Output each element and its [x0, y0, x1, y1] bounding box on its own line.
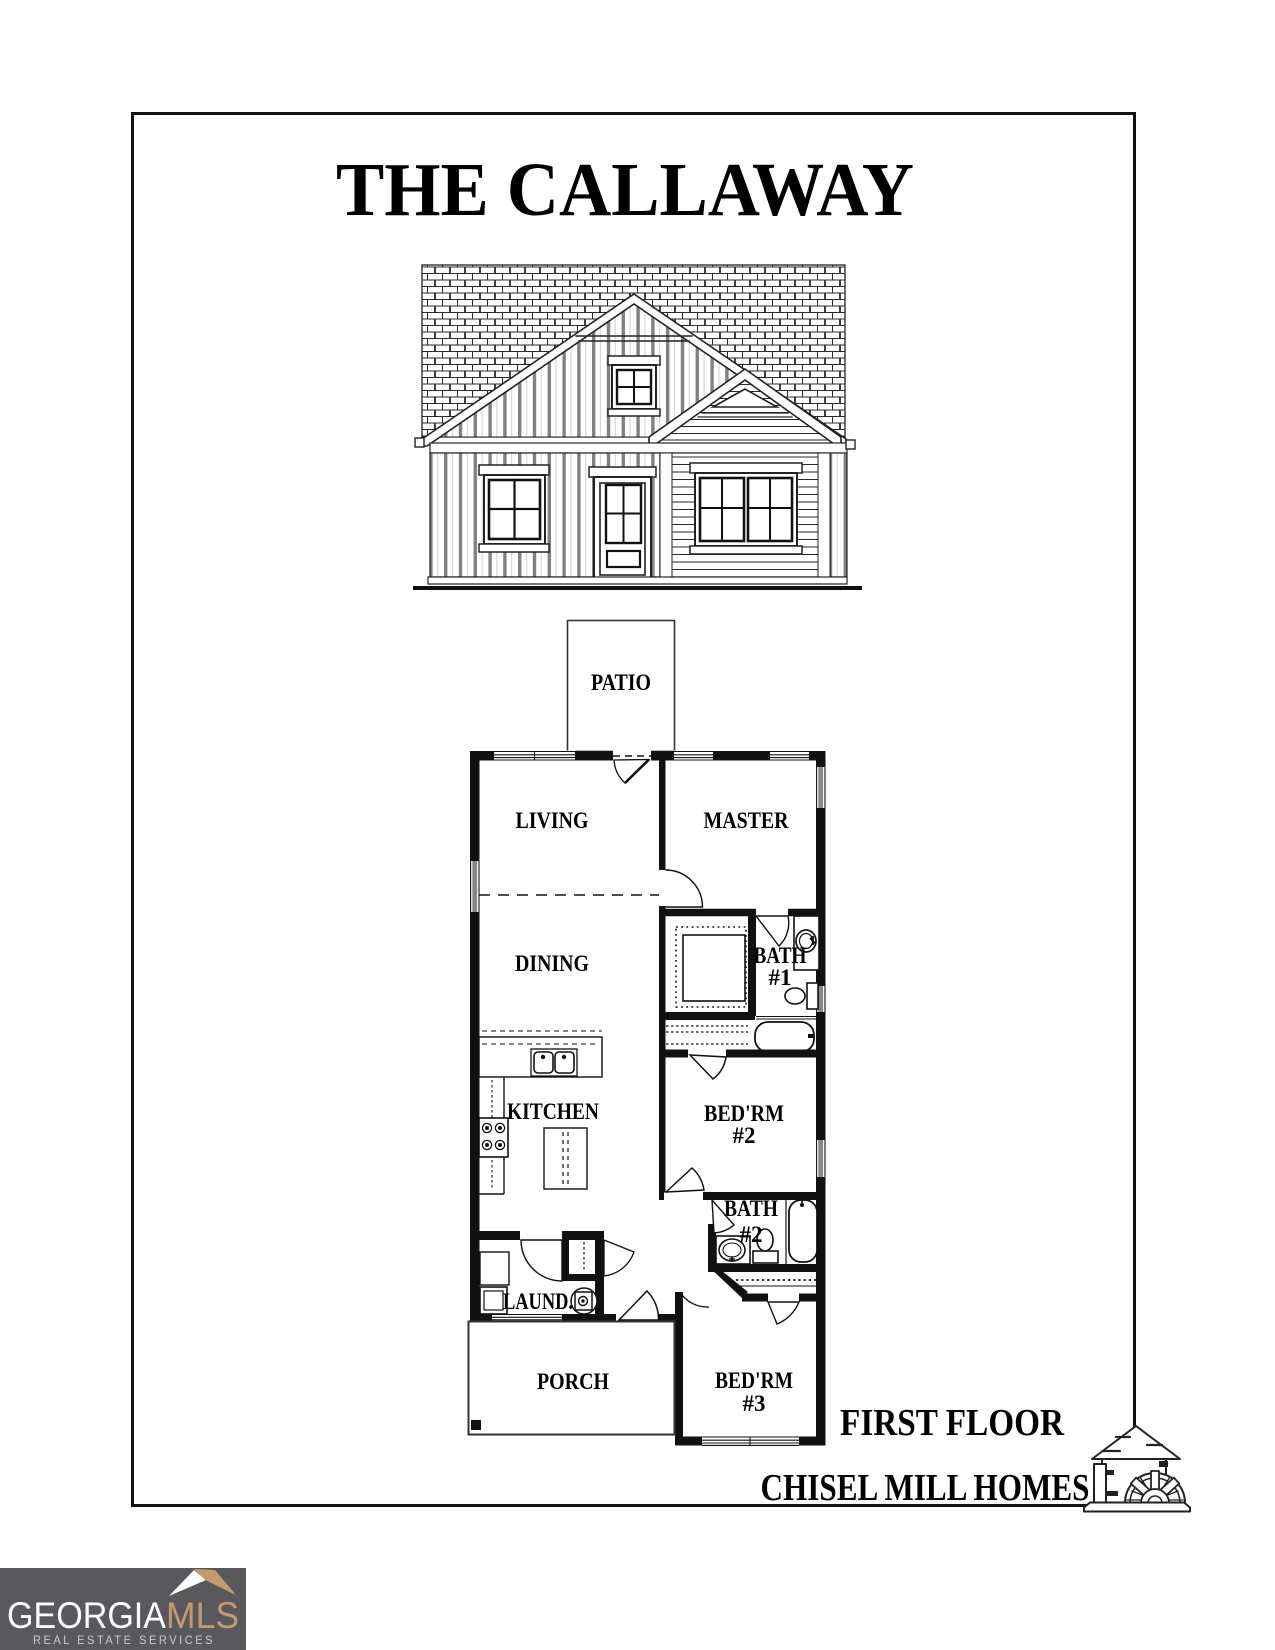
svg-text:DINING: DINING: [515, 951, 589, 976]
svg-text:REAL ESTATE SERVICES: REAL ESTATE SERVICES: [33, 1635, 215, 1647]
svg-text:BED'RM: BED'RM: [715, 1368, 793, 1393]
svg-text:THE CALLAWAY: THE CALLAWAY: [336, 148, 914, 232]
svg-text:#3: #3: [743, 1391, 766, 1416]
svg-text:LAUND.: LAUND.: [503, 1289, 573, 1314]
svg-text:KITCHEN: KITCHEN: [507, 1099, 599, 1124]
svg-text:BATH: BATH: [724, 1196, 778, 1221]
svg-text:MLS: MLS: [166, 1595, 239, 1636]
svg-text:LIVING: LIVING: [516, 808, 589, 833]
svg-text:PORCH: PORCH: [537, 1369, 609, 1394]
svg-text:PATIO: PATIO: [591, 670, 651, 695]
svg-text:#2: #2: [733, 1123, 756, 1148]
svg-text:#1: #1: [769, 965, 792, 990]
svg-text:GEORGIA: GEORGIA: [7, 1595, 166, 1636]
svg-text:MASTER: MASTER: [704, 808, 789, 833]
svg-text:#2: #2: [740, 1222, 763, 1247]
svg-text:CHISEL MILL HOMES: CHISEL MILL HOMES: [761, 1467, 1090, 1509]
svg-text:FIRST FLOOR: FIRST FLOOR: [840, 1402, 1064, 1444]
